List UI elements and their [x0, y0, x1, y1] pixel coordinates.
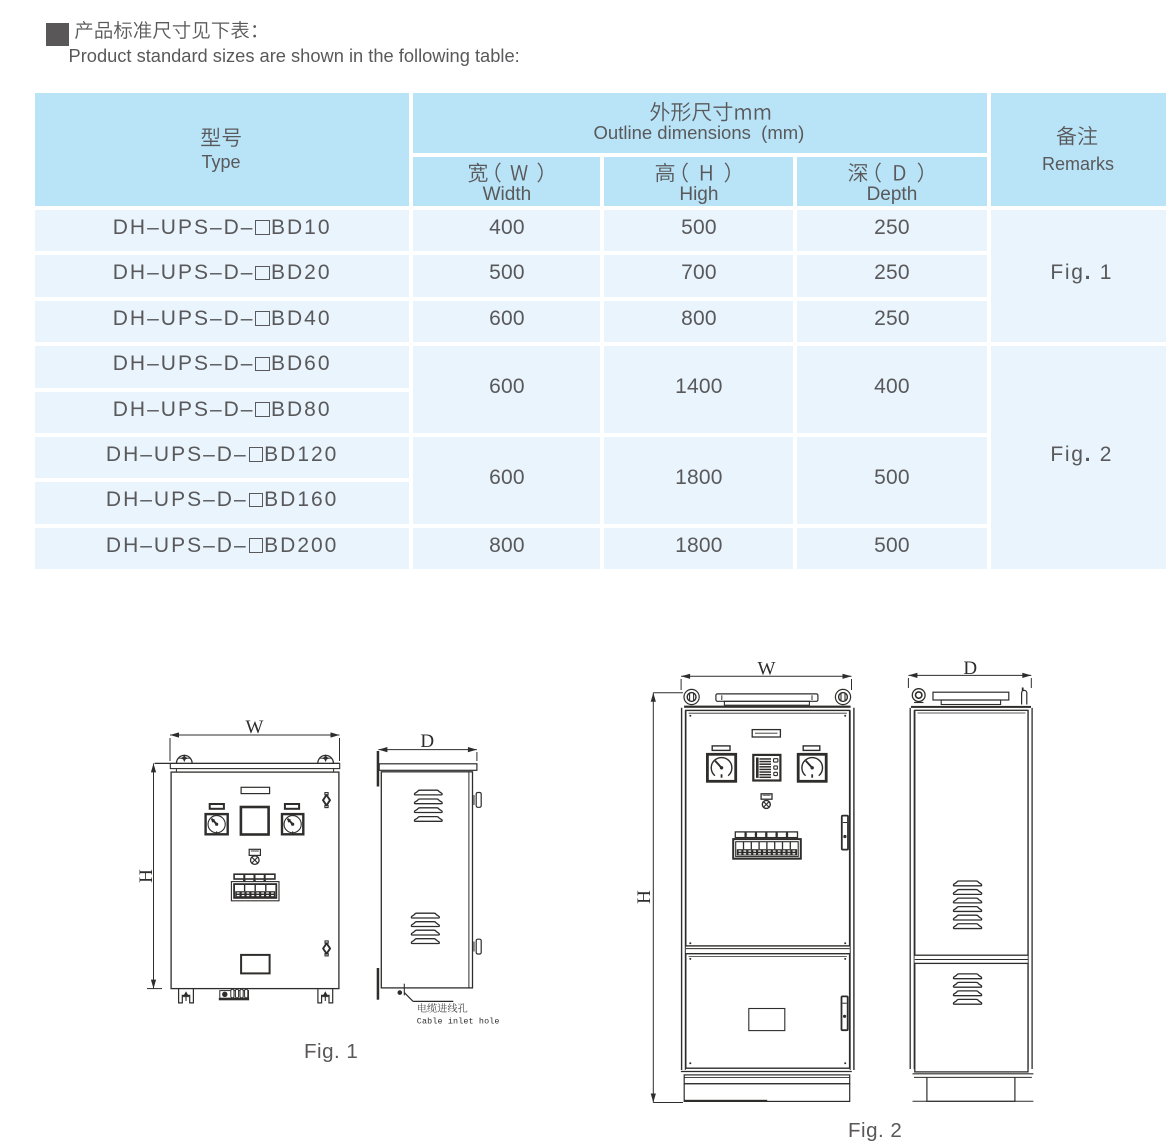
svg-text:W: W — [246, 717, 264, 738]
svg-text:Cable inlet hole: Cable inlet hole — [417, 1017, 500, 1027]
svg-text:H: H — [634, 890, 655, 904]
svg-text:W: W — [758, 659, 776, 680]
svg-text:Fig. 1: Fig. 1 — [304, 1040, 358, 1063]
svg-text:H: H — [136, 869, 157, 883]
svg-text:Fig. 2: Fig. 2 — [848, 1119, 902, 1142]
svg-text:D: D — [963, 658, 977, 679]
svg-text:D: D — [420, 731, 434, 752]
